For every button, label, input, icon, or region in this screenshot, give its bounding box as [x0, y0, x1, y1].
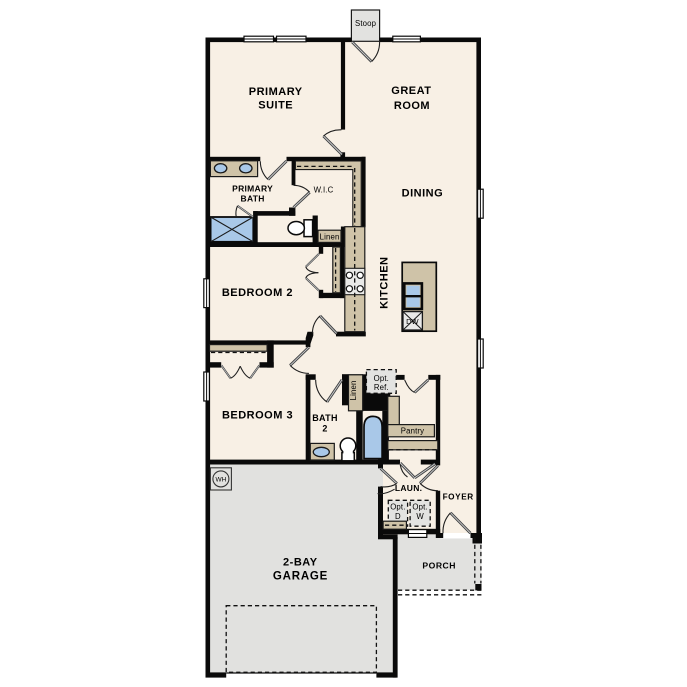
svg-text:DW: DW: [406, 317, 419, 326]
svg-text:BEDROOM 2: BEDROOM 2: [222, 287, 293, 299]
svg-text:Linen: Linen: [320, 233, 340, 242]
svg-text:WH: WH: [215, 476, 226, 483]
svg-text:Opt.: Opt.: [374, 374, 389, 383]
svg-text:GREAT: GREAT: [391, 85, 431, 97]
svg-text:BEDROOM 3: BEDROOM 3: [222, 409, 293, 421]
svg-text:Linen: Linen: [349, 380, 358, 400]
svg-text:2-BAY: 2-BAY: [283, 557, 318, 569]
svg-text:SUITE: SUITE: [258, 100, 293, 112]
svg-text:W.I.C: W.I.C: [314, 185, 334, 194]
svg-text:D: D: [395, 512, 401, 521]
svg-text:LAUN.: LAUN.: [395, 483, 422, 493]
svg-text:PRIMARY: PRIMARY: [232, 183, 273, 193]
svg-text:W: W: [416, 512, 424, 521]
svg-text:Stoop: Stoop: [355, 19, 377, 28]
svg-text:DINING: DINING: [402, 188, 444, 200]
svg-text:BATH: BATH: [312, 413, 338, 423]
svg-text:KITCHEN: KITCHEN: [378, 257, 390, 309]
svg-text:BATH: BATH: [241, 193, 265, 203]
svg-text:2: 2: [322, 423, 327, 433]
svg-text:PRIMARY: PRIMARY: [249, 86, 303, 98]
svg-text:FOYER: FOYER: [443, 492, 474, 501]
svg-text:Ref.: Ref.: [374, 383, 389, 392]
svg-text:ROOM: ROOM: [394, 100, 430, 112]
svg-text:PORCH: PORCH: [422, 561, 456, 571]
svg-text:Opt.: Opt.: [412, 502, 427, 511]
svg-text:Opt.: Opt.: [390, 502, 405, 511]
svg-text:GARAGE: GARAGE: [273, 570, 328, 582]
svg-text:Pantry: Pantry: [401, 426, 424, 435]
